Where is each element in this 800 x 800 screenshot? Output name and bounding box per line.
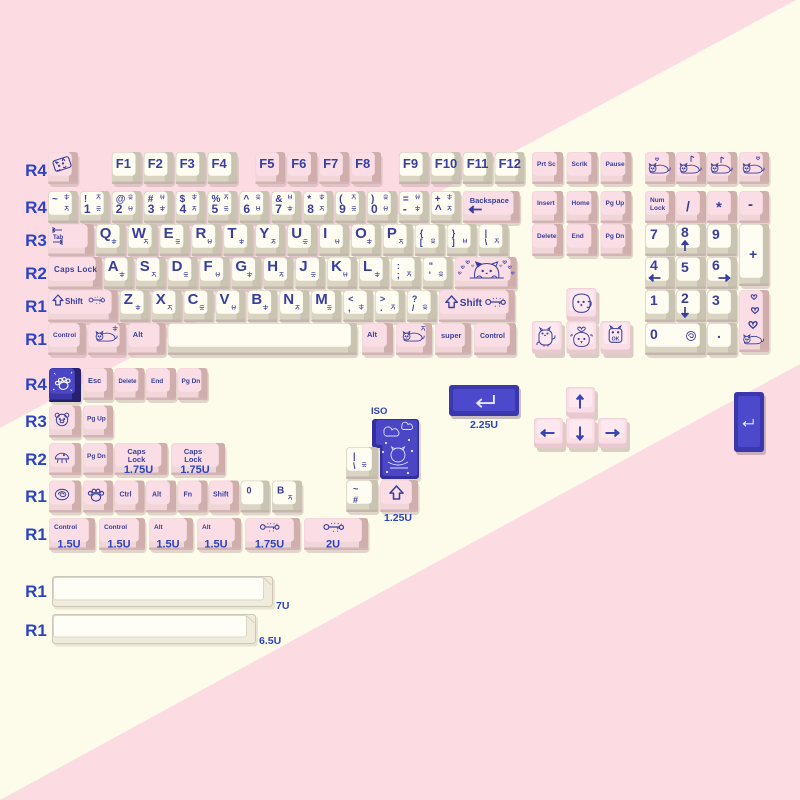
svg-text:T: T — [227, 225, 236, 242]
svg-text:End: End — [151, 378, 163, 385]
svg-text:+: + — [749, 246, 757, 262]
svg-text:,: , — [348, 303, 351, 313]
svg-text:1: 1 — [650, 292, 658, 308]
svg-text:Fn: Fn — [184, 492, 193, 499]
svg-text:I: I — [323, 225, 327, 242]
svg-text:Q: Q — [100, 225, 112, 242]
svg-text:B: B — [277, 486, 284, 497]
svg-text:R4: R4 — [25, 198, 47, 217]
svg-text:R1: R1 — [25, 297, 47, 316]
svg-text:Control: Control — [480, 333, 505, 340]
svg-text:R2: R2 — [25, 264, 47, 283]
svg-text:D: D — [172, 258, 183, 275]
svg-text:.: . — [380, 303, 383, 313]
svg-text:R1: R1 — [25, 582, 47, 601]
svg-text:~: ~ — [353, 484, 358, 494]
svg-text:R4: R4 — [25, 375, 47, 394]
svg-text:C: C — [188, 291, 199, 308]
svg-text:': ' — [429, 270, 431, 280]
svg-text:5: 5 — [681, 259, 689, 275]
svg-text:S: S — [140, 258, 150, 275]
svg-text:F11: F11 — [467, 156, 489, 171]
svg-text:F5: F5 — [259, 156, 274, 171]
svg-text:P: P — [387, 225, 397, 242]
svg-text:R1: R1 — [25, 525, 47, 544]
svg-text:6.5U: 6.5U — [259, 635, 281, 647]
svg-text:F4: F4 — [212, 156, 228, 171]
svg-text:A: A — [108, 258, 119, 275]
svg-text:F12: F12 — [499, 156, 521, 171]
svg-text:8: 8 — [681, 224, 689, 240]
svg-text:H: H — [267, 258, 278, 275]
svg-text:Shift: Shift — [460, 298, 483, 309]
svg-text:4: 4 — [180, 202, 187, 216]
svg-text:9: 9 — [339, 202, 346, 216]
svg-text:super: super — [441, 331, 462, 340]
svg-text:Control: Control — [104, 524, 127, 531]
svg-text:Esc: Esc — [88, 376, 101, 385]
svg-text:F3: F3 — [180, 156, 195, 171]
svg-text:Y: Y — [259, 225, 269, 242]
svg-text:Shift: Shift — [213, 492, 229, 499]
svg-text:Control: Control — [53, 332, 76, 339]
svg-text:F9: F9 — [403, 156, 418, 171]
svg-text:Delete: Delete — [119, 379, 138, 385]
svg-text:2: 2 — [116, 202, 123, 216]
svg-text:Lock: Lock — [128, 455, 146, 464]
svg-text:7: 7 — [650, 226, 658, 242]
svg-text:Shift: Shift — [65, 297, 83, 306]
svg-text:Pause: Pause — [606, 161, 626, 168]
svg-text:3: 3 — [148, 202, 155, 216]
svg-text:E: E — [164, 225, 174, 242]
svg-text:R1: R1 — [25, 621, 47, 640]
svg-text:3: 3 — [712, 292, 720, 308]
svg-text:[: [ — [420, 237, 423, 247]
svg-text:R3: R3 — [25, 412, 47, 431]
svg-text:K: K — [331, 258, 342, 275]
svg-text:End: End — [572, 233, 584, 240]
svg-text:J: J — [299, 258, 307, 275]
svg-text:F2: F2 — [148, 156, 163, 171]
svg-text:Pg Dn: Pg Dn — [87, 453, 106, 460]
svg-text:Prt Sc: Prt Sc — [537, 161, 556, 168]
svg-text:ISO: ISO — [371, 406, 387, 417]
svg-text:R2: R2 — [25, 450, 47, 469]
svg-text:4: 4 — [650, 257, 658, 273]
svg-text:/: / — [686, 198, 690, 214]
svg-text:5: 5 — [212, 202, 219, 216]
svg-text:G: G — [235, 258, 247, 275]
svg-text:F10: F10 — [435, 156, 457, 171]
svg-text:#: # — [353, 495, 358, 505]
svg-text:Alt: Alt — [202, 524, 212, 531]
svg-text:Pg Up: Pg Up — [87, 416, 106, 423]
svg-text:*: * — [716, 199, 722, 216]
svg-text:B: B — [251, 291, 262, 308]
svg-text:Delete: Delete — [537, 233, 557, 240]
svg-text:8: 8 — [307, 202, 314, 216]
svg-text:7U: 7U — [276, 600, 289, 612]
svg-text:F1: F1 — [116, 156, 131, 171]
svg-text:Alt: Alt — [133, 330, 144, 339]
svg-text:1.75U: 1.75U — [124, 464, 153, 476]
svg-text:;: ; — [397, 270, 400, 280]
svg-text:Alt: Alt — [152, 492, 162, 499]
svg-text:2.25U: 2.25U — [470, 419, 498, 431]
svg-text:2U: 2U — [326, 539, 340, 551]
svg-text:7: 7 — [275, 202, 282, 216]
svg-text:O: O — [355, 225, 367, 242]
svg-text:Pg Dn: Pg Dn — [606, 233, 625, 240]
svg-text:Scrlk: Scrlk — [572, 161, 588, 168]
svg-text:Alt: Alt — [154, 524, 164, 531]
svg-text:OK: OK — [612, 337, 620, 343]
svg-text:6: 6 — [712, 257, 720, 273]
svg-text:.: . — [717, 325, 721, 341]
svg-text:Alt: Alt — [367, 330, 378, 339]
svg-text:R3: R3 — [25, 231, 47, 250]
svg-text:0: 0 — [371, 202, 378, 216]
svg-text:U: U — [291, 225, 302, 242]
svg-text:Z: Z — [124, 291, 133, 308]
svg-text:Num: Num — [650, 197, 665, 204]
svg-text:-: - — [748, 196, 753, 213]
svg-text:M: M — [315, 291, 328, 308]
svg-text:1.5U: 1.5U — [156, 539, 179, 551]
svg-text:Lock: Lock — [650, 205, 666, 212]
svg-text:]: ] — [452, 237, 455, 247]
svg-text:2: 2 — [681, 290, 689, 306]
svg-text:1: 1 — [84, 202, 91, 216]
svg-text:0: 0 — [247, 486, 252, 496]
svg-text:^: ^ — [435, 202, 442, 216]
svg-text:R1: R1 — [25, 487, 47, 506]
svg-text:6: 6 — [243, 202, 250, 216]
svg-text:F8: F8 — [355, 156, 370, 171]
svg-text:Insert: Insert — [537, 200, 556, 207]
svg-text:R: R — [196, 225, 207, 242]
svg-text:F7: F7 — [323, 156, 338, 171]
svg-text:F6: F6 — [291, 156, 306, 171]
svg-text:L: L — [363, 258, 372, 275]
svg-text:9: 9 — [712, 226, 720, 242]
svg-text:Pg Dn: Pg Dn — [182, 378, 201, 385]
svg-text:1.5U: 1.5U — [57, 539, 80, 551]
svg-text:Backspace: Backspace — [470, 196, 509, 205]
svg-text:R4: R4 — [25, 161, 47, 180]
svg-text:1.5U: 1.5U — [204, 539, 227, 551]
svg-text:V: V — [220, 291, 230, 308]
svg-text:Control: Control — [54, 524, 77, 531]
svg-text:-: - — [403, 202, 407, 216]
svg-text:1.75U: 1.75U — [180, 464, 209, 476]
svg-text:N: N — [283, 291, 294, 308]
svg-text:X: X — [156, 291, 166, 308]
svg-text:1.25U: 1.25U — [384, 512, 412, 524]
svg-text:~: ~ — [52, 194, 58, 205]
svg-text:Lock: Lock — [184, 455, 202, 464]
svg-text:Ctrl: Ctrl — [120, 492, 132, 499]
svg-text:0: 0 — [650, 326, 658, 342]
svg-text:R1: R1 — [25, 330, 47, 349]
svg-text:1.75U: 1.75U — [255, 539, 284, 551]
svg-text:F: F — [204, 258, 213, 275]
svg-text:Home: Home — [572, 200, 590, 207]
svg-text:Pg Up: Pg Up — [606, 200, 625, 207]
svg-text:Caps Lock: Caps Lock — [54, 265, 97, 274]
svg-text:1.5U: 1.5U — [107, 539, 130, 551]
svg-text:|: | — [353, 451, 356, 461]
